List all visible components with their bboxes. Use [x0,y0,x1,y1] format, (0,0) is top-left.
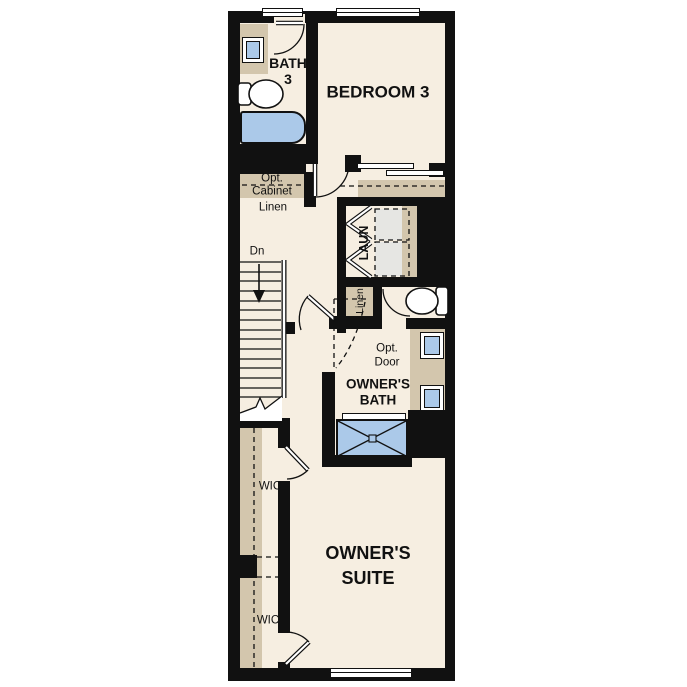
bath3-label-line1: BATH [269,56,307,70]
wic-upper-label: WIC [259,481,281,493]
owners-bath-label-line1: OWNER'S [346,377,410,391]
stair-break-line [240,396,282,421]
opt-cabinet-label-line2: Cabinet [252,186,292,198]
wic-lower-label: WIC [257,615,279,627]
floor-plan: BEDROOM 3 BATH 3 Opt. Cabinet Linen Dn L… [0,0,687,687]
stairs [240,262,281,397]
stairs-down-label: Dn [250,246,265,258]
laundry-label: LAUN [358,226,371,261]
dashed-lines [242,185,445,668]
owners-suite-label-line2: SUITE [341,569,394,587]
opt-door-label-line2: Door [375,357,400,369]
bath3-label-line2: 3 [284,72,292,86]
linen-hall-label: Linen [259,202,287,214]
owners-toilet [406,287,448,315]
owners-suite-label-line1: OWNER'S [325,544,410,562]
owners-bath-label-line2: BATH [360,393,397,407]
opt-cabinet-label-line1: Opt. [261,173,283,185]
bath3-toilet [238,80,283,108]
linen-closet-label: Linen [355,288,366,314]
shower-x [338,421,406,456]
stairs-down-arrow [253,264,265,303]
opt-door-label-line1: Opt. [376,343,398,355]
bedroom3-label: BEDROOM 3 [327,84,430,101]
